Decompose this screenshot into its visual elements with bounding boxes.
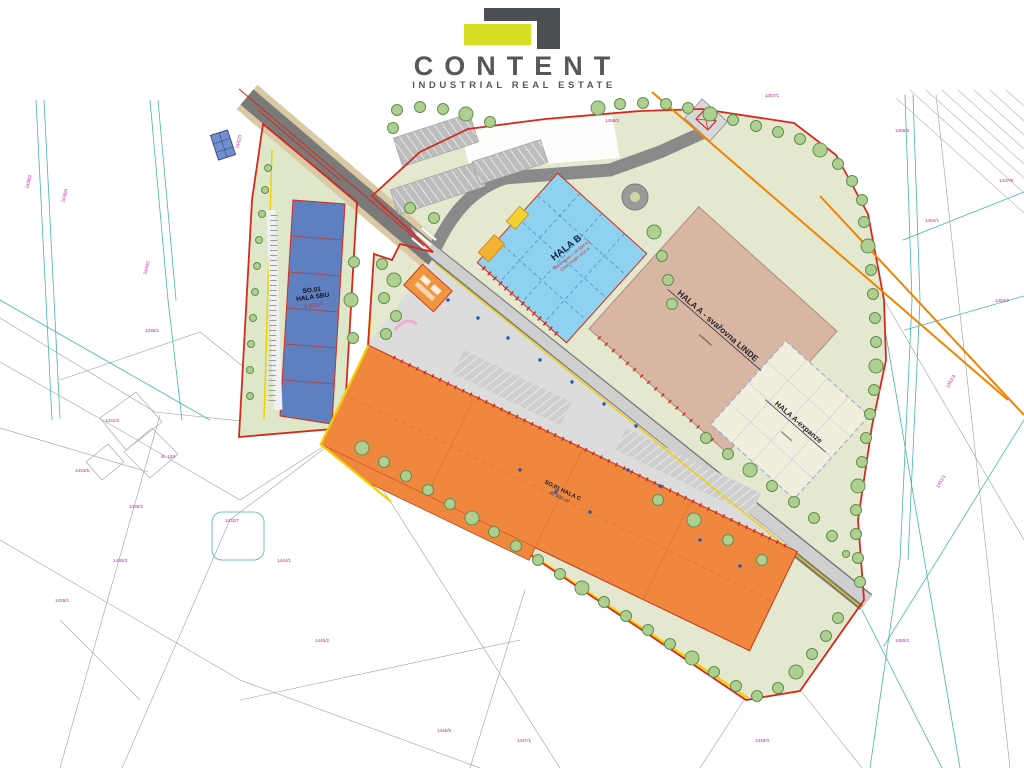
tree-icon: [415, 102, 426, 113]
tree-icon: [533, 555, 544, 566]
tree-icon: [857, 457, 868, 468]
tree-icon: [703, 107, 717, 121]
car-dot: [446, 298, 449, 301]
parcel-number: 1438/4: [60, 188, 69, 203]
tree-icon: [381, 329, 392, 340]
tree-icon: [657, 251, 668, 262]
tree-icon: [599, 597, 610, 608]
building-hut: [210, 130, 235, 160]
tree-icon: [851, 529, 862, 540]
tree-icon: [445, 499, 456, 510]
parcel-number: 1429/1: [55, 598, 69, 603]
tree-icon: [865, 409, 876, 420]
tree-icon: [265, 165, 272, 172]
tree-icon: [405, 203, 416, 214]
parcel-number: st. 128: [161, 454, 175, 459]
tree-icon: [851, 505, 862, 516]
tree-icon: [250, 315, 257, 322]
parcel-number: 1450/2: [895, 638, 909, 643]
parcel-number: 1453/2: [995, 298, 1009, 303]
logo-text: CONTENT: [11, 52, 1024, 80]
tree-icon: [773, 127, 784, 138]
parcel-number: 1433/5: [75, 468, 89, 473]
tree-icon: [752, 691, 763, 702]
parcel-number: 1431/2: [105, 418, 119, 423]
parcel-number: 1455/3: [895, 128, 909, 133]
tree-icon: [653, 495, 664, 506]
parcel-number: 1438/2: [24, 174, 33, 189]
parcel-number: 1435/1: [145, 328, 159, 333]
tree-icon: [861, 239, 875, 253]
tree-icon: [843, 551, 850, 558]
tree-icon: [254, 263, 261, 270]
tree-icon: [851, 479, 865, 493]
tree-icon: [591, 101, 605, 115]
tree-icon: [429, 213, 440, 224]
tree-icon: [869, 359, 883, 373]
tree-icon: [853, 553, 864, 564]
tree-icon: [387, 273, 401, 287]
parcel-number: 1442/3: [234, 134, 243, 149]
page: { "logo": { "name": "CONTENT", "tagline"…: [0, 0, 1024, 768]
tree-icon: [751, 121, 762, 132]
car-dot: [634, 424, 637, 427]
tree-icon: [767, 481, 778, 492]
tree-icon: [833, 159, 844, 170]
tree-icon: [391, 311, 402, 322]
tree-icon: [731, 681, 742, 692]
car-dot: [538, 358, 541, 361]
tree-icon: [379, 293, 390, 304]
tree-icon: [709, 667, 720, 678]
tree-icon: [701, 433, 712, 444]
tree-icon: [401, 471, 412, 482]
tree-icon: [643, 625, 654, 636]
tree-icon: [248, 341, 255, 348]
logo-mark-icon: [463, 8, 561, 50]
tree-icon: [665, 639, 676, 650]
parcel-number: 1456/2: [605, 118, 619, 123]
parcel-number: 1432/7: [225, 518, 239, 523]
tree-icon: [723, 535, 734, 546]
tree-icon: [438, 104, 449, 115]
tree-icon: [667, 299, 678, 310]
tree-icon: [757, 555, 768, 566]
tree-icon: [821, 631, 832, 642]
tree-icon: [388, 123, 399, 134]
car-dot: [506, 336, 509, 339]
tree-icon: [615, 99, 626, 110]
car-dot: [570, 380, 573, 383]
tree-icon: [465, 511, 479, 525]
tree-icon: [833, 613, 844, 624]
tree-icon: [789, 665, 803, 679]
tree-icon: [638, 98, 649, 109]
tree-icon: [847, 176, 858, 187]
car-dot: [602, 402, 605, 405]
parcel-number: 1448/3: [755, 738, 769, 743]
tree-icon: [743, 463, 757, 477]
tree-icon: [355, 441, 369, 455]
parcel-number: 1454/1: [925, 218, 939, 223]
tree-icon: [869, 385, 880, 396]
parcel-number: 1447/1: [517, 738, 531, 743]
company-logo: CONTENT INDUSTRIAL REAL ESTATE: [0, 8, 1024, 91]
tree-icon: [795, 134, 806, 145]
tree-icon: [379, 457, 390, 468]
site-plan: SO.01 HALA SBU 8 360 m² HALA B Warehouse…: [0, 0, 1024, 768]
tree-icon: [377, 259, 388, 270]
tree-icon: [773, 683, 784, 694]
tree-icon: [861, 433, 872, 444]
tree-icon: [575, 581, 589, 595]
tree-icon: [423, 485, 434, 496]
car-dot: [476, 316, 479, 319]
tree-icon: [392, 105, 403, 116]
parcel-number: 1445/2: [315, 638, 329, 643]
tree-icon: [256, 237, 263, 244]
tree-icon: [555, 569, 566, 580]
tree-icon: [789, 497, 800, 508]
tree-icon: [661, 99, 672, 110]
tree-icon: [859, 217, 870, 228]
logo-tagline: INDUSTRIAL REAL ESTATE: [4, 80, 1024, 91]
tree-icon: [866, 265, 877, 276]
tree-icon: [259, 211, 266, 218]
parcel-number: 1452/4: [945, 374, 957, 389]
car-dot: [588, 510, 591, 513]
tree-icon: [855, 577, 866, 588]
tree-icon: [621, 611, 632, 622]
tree-icon: [647, 225, 661, 239]
parcel-number: 1457/1: [765, 93, 779, 98]
tree-icon: [807, 649, 818, 660]
tree-icon: [252, 289, 259, 296]
car-dot: [626, 468, 629, 471]
parcel-number: 1430/3: [113, 558, 127, 563]
parcel-number: 1446/5: [437, 728, 451, 733]
tree-icon: [809, 513, 820, 524]
tree-icon: [459, 107, 473, 121]
tree-icon: [489, 527, 500, 538]
tree-icon: [687, 513, 701, 527]
tree-icon: [663, 275, 674, 286]
car-dot: [738, 564, 741, 567]
tree-icon: [871, 337, 882, 348]
car-dot: [698, 538, 701, 541]
tree-icon: [247, 393, 254, 400]
parcel-number: 1444/1: [277, 558, 291, 563]
tree-icon: [349, 257, 360, 268]
tree-icon: [685, 651, 699, 665]
parcel-number: 1440/1: [142, 260, 151, 275]
tree-icon: [870, 313, 881, 324]
parcel-number: 1451/1: [935, 474, 947, 489]
parcel-number: 1437/8: [999, 178, 1013, 183]
tree-icon: [247, 367, 254, 374]
tree-icon: [683, 103, 694, 114]
tree-icon: [868, 289, 879, 300]
tree-icon: [262, 187, 269, 194]
parcel-number: 1436/2: [129, 504, 143, 509]
tree-icon: [348, 333, 359, 344]
tree-icon: [728, 115, 739, 126]
tree-icon: [813, 143, 827, 157]
car-dot: [518, 468, 521, 471]
tree-icon: [857, 195, 868, 206]
tree-icon: [485, 117, 496, 128]
tree-icon: [511, 541, 522, 552]
tree-icon: [344, 293, 358, 307]
tree-icon: [827, 531, 838, 542]
car-dot: [658, 484, 661, 487]
tree-icon: [723, 449, 734, 460]
